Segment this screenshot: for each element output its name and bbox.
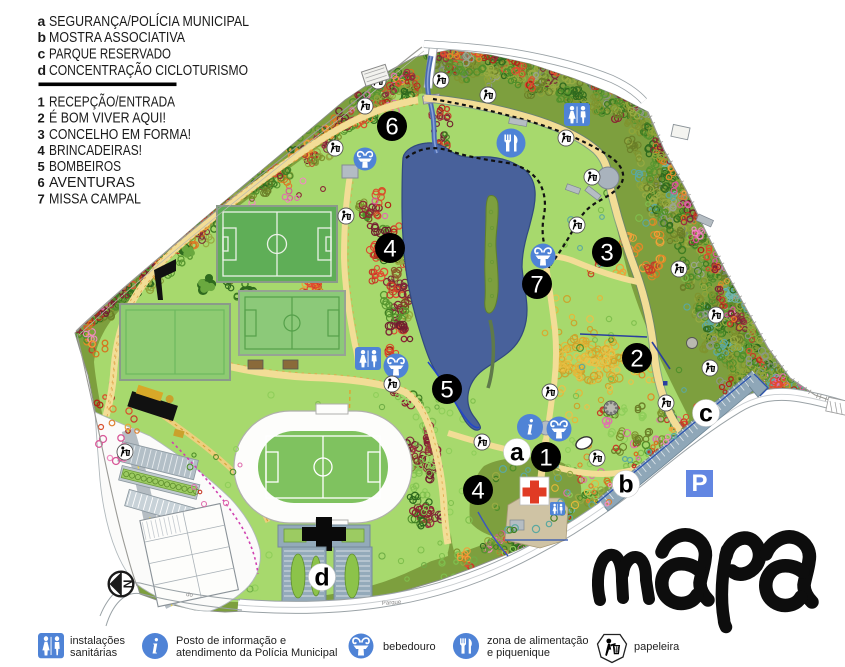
svg-text:6: 6 xyxy=(38,175,45,190)
svg-text:7: 7 xyxy=(530,272,543,299)
svg-text:5: 5 xyxy=(38,159,45,174)
svg-text:2: 2 xyxy=(38,111,45,126)
svg-text:papeleira: papeleira xyxy=(634,641,680,653)
svg-text:Parque: Parque xyxy=(382,600,402,607)
svg-text:zona de alimentação: zona de alimentação xyxy=(487,635,589,647)
svg-text:1: 1 xyxy=(539,445,552,472)
svg-text:4: 4 xyxy=(383,236,396,263)
svg-text:4: 4 xyxy=(38,143,46,158)
svg-text:É BOM VIVER AQUI!: É BOM VIVER AQUI! xyxy=(49,110,166,127)
svg-text:MOSTRA ASSOCIATIVA: MOSTRA ASSOCIATIVA xyxy=(49,30,185,46)
svg-text:N: N xyxy=(121,580,135,589)
svg-text:CONCENTRAÇÃO CICLOTURISMO: CONCENTRAÇÃO CICLOTURISMO xyxy=(49,62,248,79)
svg-text:BRINCADEIRAS!: BRINCADEIRAS! xyxy=(49,143,142,159)
svg-text:instalações: instalações xyxy=(70,635,126,647)
svg-text:e piquenique: e piquenique xyxy=(487,647,550,659)
svg-text:7: 7 xyxy=(38,192,45,207)
svg-text:d: d xyxy=(38,62,47,78)
svg-text:CONCELHO EM FORMA!: CONCELHO EM FORMA! xyxy=(49,127,191,143)
svg-text:c: c xyxy=(38,46,46,62)
svg-text:b: b xyxy=(618,471,633,499)
svg-text:P: P xyxy=(691,470,707,497)
svg-text:d: d xyxy=(314,564,329,592)
svg-text:2: 2 xyxy=(630,346,643,373)
svg-text:a: a xyxy=(510,439,525,467)
svg-text:a: a xyxy=(38,13,46,29)
svg-text:1: 1 xyxy=(38,95,45,110)
svg-text:5: 5 xyxy=(440,377,453,404)
svg-text:3: 3 xyxy=(38,127,45,142)
svg-text:4: 4 xyxy=(471,478,484,505)
svg-text:b: b xyxy=(38,29,47,45)
svg-text:PARQUE RESERVADO: PARQUE RESERVADO xyxy=(49,47,171,63)
svg-text:SEGURANÇA/POLÍCIA MUNICIPAL: SEGURANÇA/POLÍCIA MUNICIPAL xyxy=(49,13,249,30)
svg-text:atendimento da Polícia Municip: atendimento da Polícia Municipal xyxy=(176,647,337,659)
svg-text:sanitárias: sanitárias xyxy=(70,647,118,659)
svg-text:3: 3 xyxy=(600,240,613,267)
svg-text:bebedouro: bebedouro xyxy=(383,641,436,653)
svg-text:6: 6 xyxy=(385,114,398,141)
svg-text:BOMBEIROS: BOMBEIROS xyxy=(49,159,121,175)
svg-text:AVENTURAS: AVENTURAS xyxy=(49,175,135,191)
svg-text:c: c xyxy=(699,400,713,428)
svg-text:MISSA CAMPAL: MISSA CAMPAL xyxy=(49,192,141,208)
svg-text:Posto de informação e: Posto de informação e xyxy=(176,635,286,647)
svg-text:RECEPÇÃO/ENTRADA: RECEPÇÃO/ENTRADA xyxy=(49,94,175,111)
svg-text:do: do xyxy=(186,592,194,599)
